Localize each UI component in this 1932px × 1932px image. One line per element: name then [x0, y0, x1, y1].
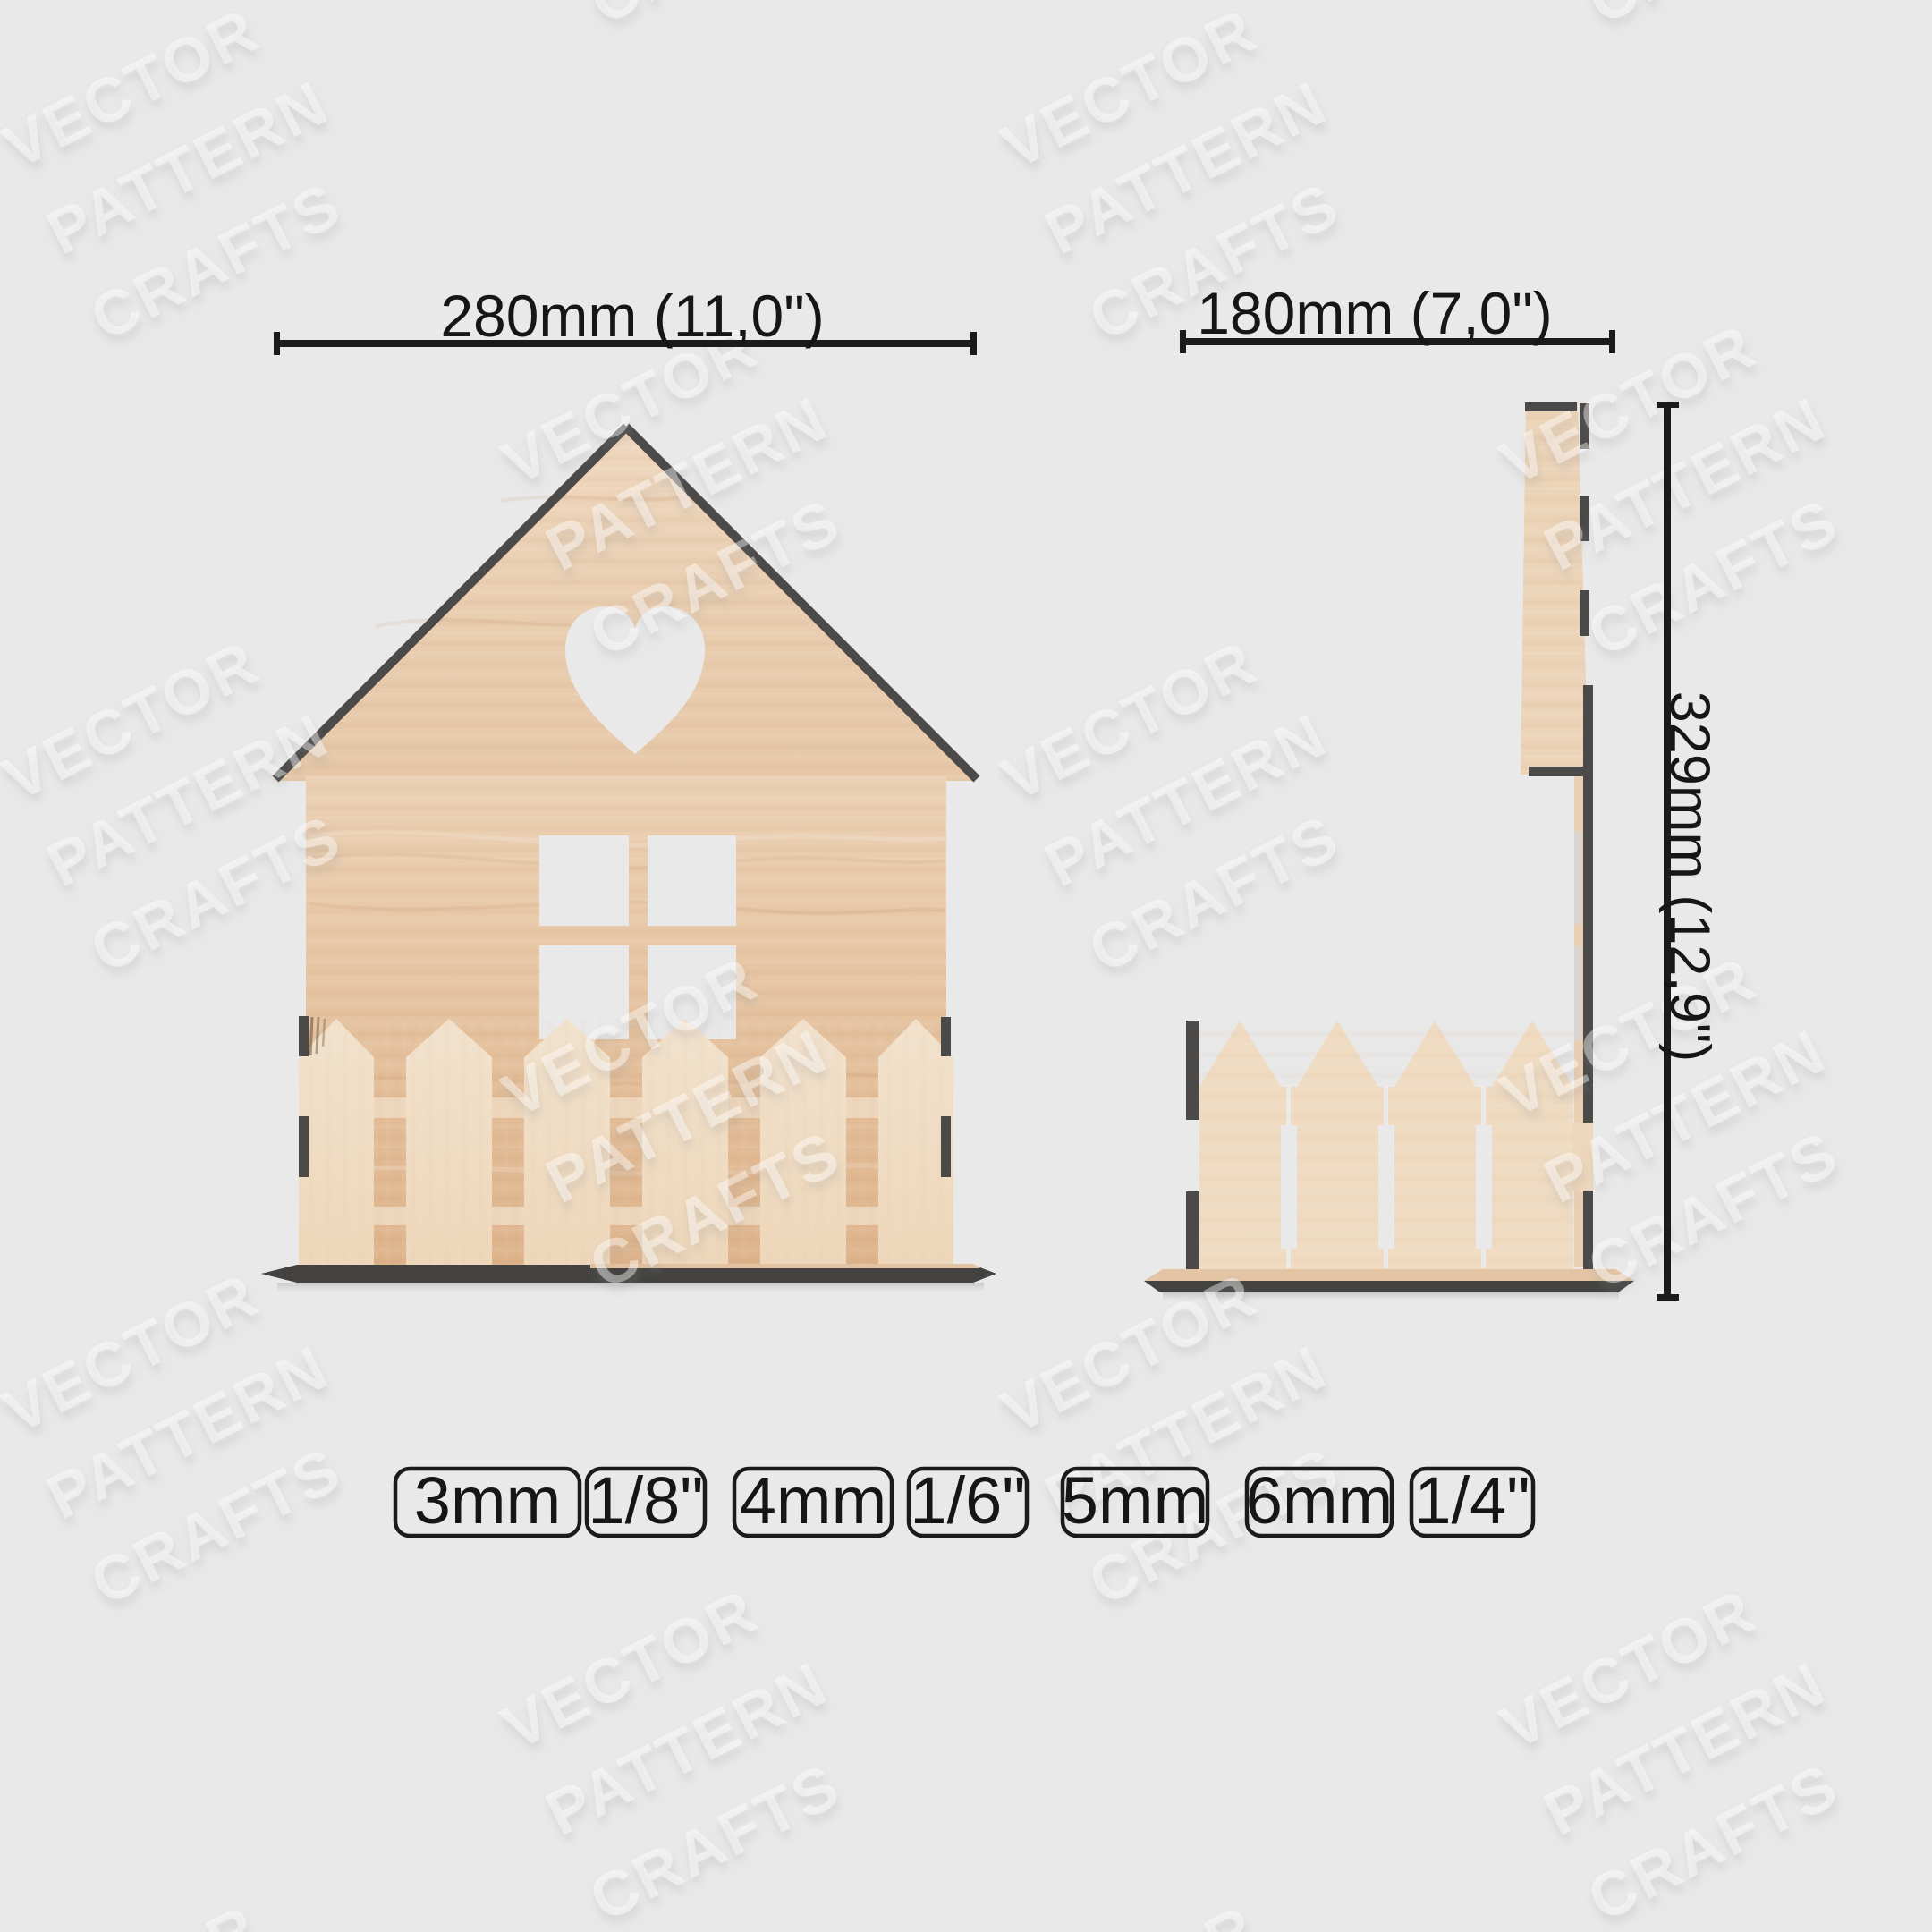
svg-text:180mm (7,0"): 180mm (7,0")	[1197, 280, 1553, 346]
svg-text:329mm (12,9"): 329mm (12,9")	[1658, 691, 1721, 1063]
svg-text:1/6": 1/6"	[910, 1463, 1025, 1538]
svg-text:5mm: 5mm	[1062, 1463, 1208, 1538]
svg-text:4mm: 4mm	[740, 1463, 886, 1538]
svg-text:1/8": 1/8"	[588, 1463, 703, 1538]
svg-text:1/4": 1/4"	[1414, 1463, 1529, 1538]
svg-text:6mm: 6mm	[1246, 1463, 1393, 1538]
svg-text:3mm: 3mm	[414, 1463, 561, 1538]
svg-text:280mm (11,0"): 280mm (11,0")	[440, 283, 824, 349]
